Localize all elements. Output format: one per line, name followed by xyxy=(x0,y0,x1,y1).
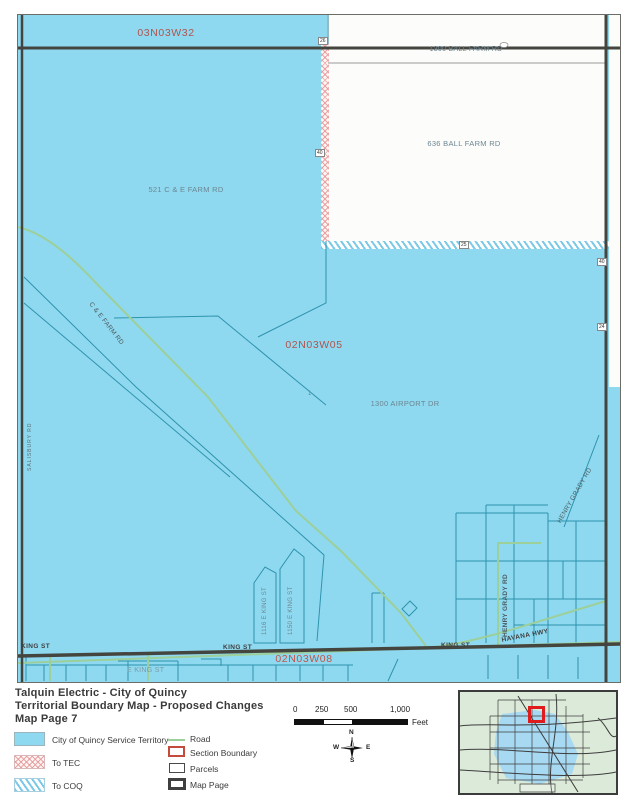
label-henry-grady-rd: HENRY GRADY RD xyxy=(502,574,509,637)
scale-unit-feet: Feet xyxy=(412,718,428,727)
label-1150-e-king: 1150 E KING ST xyxy=(288,587,295,635)
compass-e: E xyxy=(366,744,370,751)
legend-label-to-coq: To COQ xyxy=(52,781,83,791)
legend-swatch-service-territory xyxy=(14,732,45,746)
section-label-03N03W32: 03N03W32 xyxy=(106,28,226,40)
page: { "map": { "section_labels": { "nw": "03… xyxy=(0,0,624,806)
map-frame: 03N03W32 02N03W05 02N03W08 1300 BALL FAR… xyxy=(17,14,621,683)
legend-swatch-road xyxy=(168,739,185,741)
edge-marker-40-east: 40 xyxy=(597,258,607,266)
legend-label-section-boundary: Section Boundary xyxy=(190,748,257,758)
label-e-king-st: E KING ST xyxy=(127,667,164,675)
map-title-line2: Territorial Boundary Map - Proposed Chan… xyxy=(15,700,264,712)
edge-marker-24: 24 xyxy=(597,323,607,331)
label-636-ball-farm: 636 BALL FARM RD xyxy=(404,140,524,148)
label-king-st-west: KING ST xyxy=(21,643,50,650)
legend-swatch-to-tec xyxy=(14,755,45,769)
thin-parcel-lines xyxy=(328,15,606,63)
compass-s: S xyxy=(350,757,354,764)
scale-bar xyxy=(294,719,408,725)
map-title-line3: Map Page 7 xyxy=(15,713,78,725)
inset-highlight-page7 xyxy=(528,706,545,723)
edge-marker-25: 25 xyxy=(459,241,469,249)
label-king-st-east: KING ST xyxy=(441,642,470,649)
scale-tick-1000: 1,000 xyxy=(390,705,410,714)
legend-swatch-parcels xyxy=(169,763,185,773)
legend-label-parcels: Parcels xyxy=(190,764,218,774)
label-king-st-center: KING ST xyxy=(223,644,252,651)
map-title-line1: Talquin Electric - City of Quincy xyxy=(15,687,187,699)
section-label-02N03W05: 02N03W05 xyxy=(254,340,374,352)
legend-swatch-to-coq xyxy=(14,778,45,792)
legend-label-road: Road xyxy=(190,734,210,744)
label-1116-e-king: 1116 E KING ST xyxy=(262,587,269,635)
legend-label-map-page: Map Page xyxy=(190,780,229,790)
scale-tick-250: 250 xyxy=(315,705,328,714)
compass-n: N xyxy=(349,729,354,736)
compass-w: W xyxy=(333,744,339,751)
label-1300-airport-dr: 1300 AIRPORT DR xyxy=(345,400,465,408)
scale-tick-500: 500 xyxy=(344,705,357,714)
legend-label-service-territory: City of Quincy Service Territory xyxy=(52,735,169,745)
inset-locator-map xyxy=(458,690,618,795)
label-west-edge-road: SALISBURY RD xyxy=(28,423,34,472)
label-521-ce-farm: 521 C & E FARM RD xyxy=(126,186,246,194)
edge-marker-26: 26 xyxy=(318,37,328,45)
section-label-02N03W08: 02N03W08 xyxy=(244,654,364,666)
scale-tick-0: 0 xyxy=(293,705,297,714)
label-lot-1: 1 xyxy=(308,391,312,398)
legend-swatch-section-boundary xyxy=(168,746,185,757)
label-1300-ball-farm: 1300 BALL FARM RD xyxy=(406,46,526,54)
teal-parcel-boundaries xyxy=(24,241,606,681)
legend-label-to-tec: To TEC xyxy=(52,758,80,768)
edge-marker-40-west: 40 xyxy=(315,149,325,157)
legend-swatch-map-page xyxy=(168,778,186,790)
